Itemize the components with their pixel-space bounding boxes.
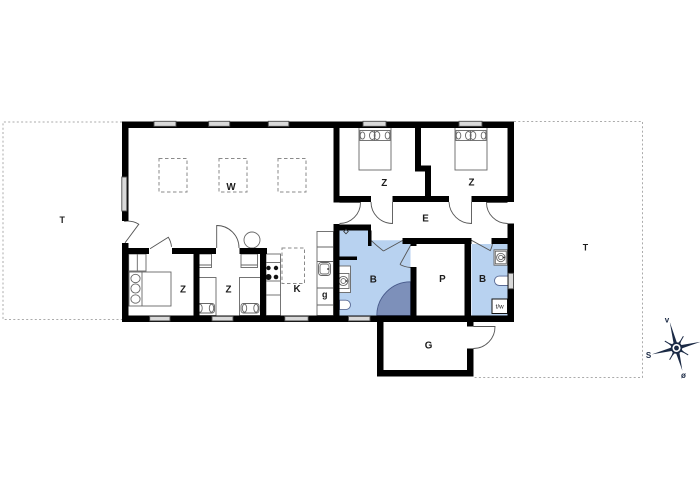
svg-text:E: E: [422, 214, 429, 225]
svg-text:P: P: [439, 274, 446, 285]
svg-text:B: B: [479, 274, 486, 285]
svg-text:t/w: t/w: [496, 304, 504, 311]
svg-text:T: T: [60, 215, 66, 225]
svg-text:v: v: [665, 315, 670, 324]
svg-text:B: B: [370, 275, 377, 286]
svg-text:Z: Z: [226, 285, 232, 296]
svg-text:ø: ø: [681, 371, 686, 380]
svg-text:Z: Z: [469, 178, 475, 189]
svg-text:Z: Z: [180, 285, 186, 296]
svg-text:K: K: [293, 284, 300, 295]
svg-text:S: S: [646, 351, 652, 360]
svg-text:T: T: [583, 243, 589, 253]
svg-text:W: W: [226, 182, 236, 193]
svg-text:G: G: [425, 341, 433, 352]
svg-text:g: g: [322, 290, 328, 300]
svg-text:Z: Z: [381, 178, 387, 189]
